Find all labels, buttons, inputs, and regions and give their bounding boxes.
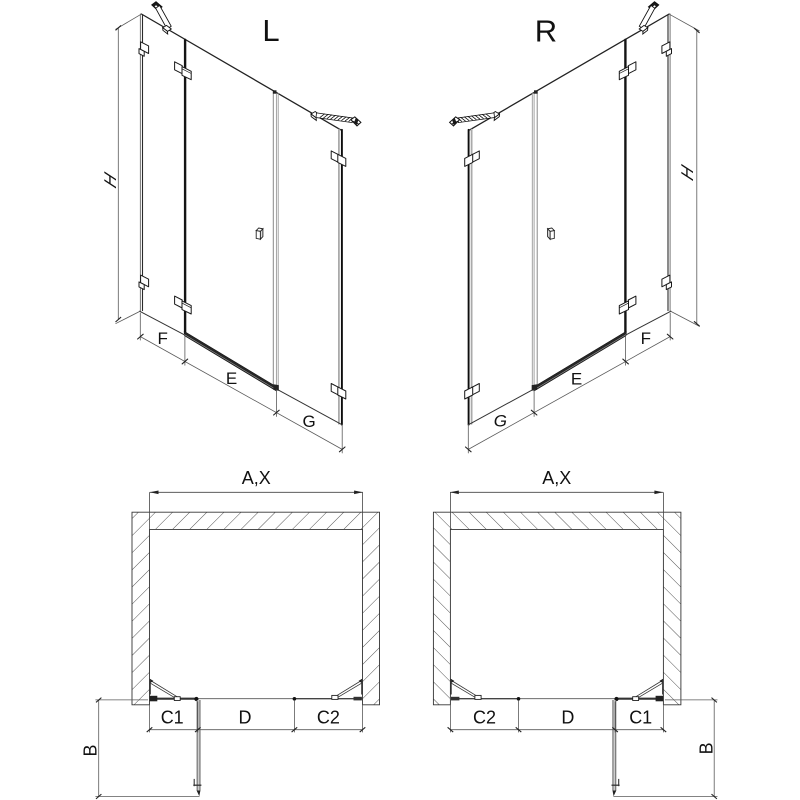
svg-text:G: G [494, 412, 507, 431]
svg-text:F: F [641, 329, 651, 348]
svg-text:E: E [226, 369, 237, 388]
svg-text:C1: C1 [161, 708, 184, 728]
svg-text:G: G [302, 412, 315, 431]
svg-text:H: H [101, 168, 120, 193]
svg-text:B: B [81, 744, 101, 756]
svg-text:A,X: A,X [542, 468, 571, 488]
svg-text:E: E [571, 370, 582, 389]
svg-text:D: D [239, 708, 252, 728]
svg-text:C1: C1 [629, 708, 652, 728]
svg-text:C2: C2 [473, 708, 496, 728]
svg-text:C2: C2 [317, 708, 340, 728]
svg-text:F: F [158, 329, 168, 348]
svg-text:L: L [262, 13, 279, 48]
svg-text:A,X: A,X [242, 468, 271, 488]
svg-text:B: B [696, 742, 716, 754]
svg-text:R: R [535, 14, 557, 49]
svg-text:H: H [678, 160, 697, 185]
svg-text:D: D [561, 708, 574, 728]
